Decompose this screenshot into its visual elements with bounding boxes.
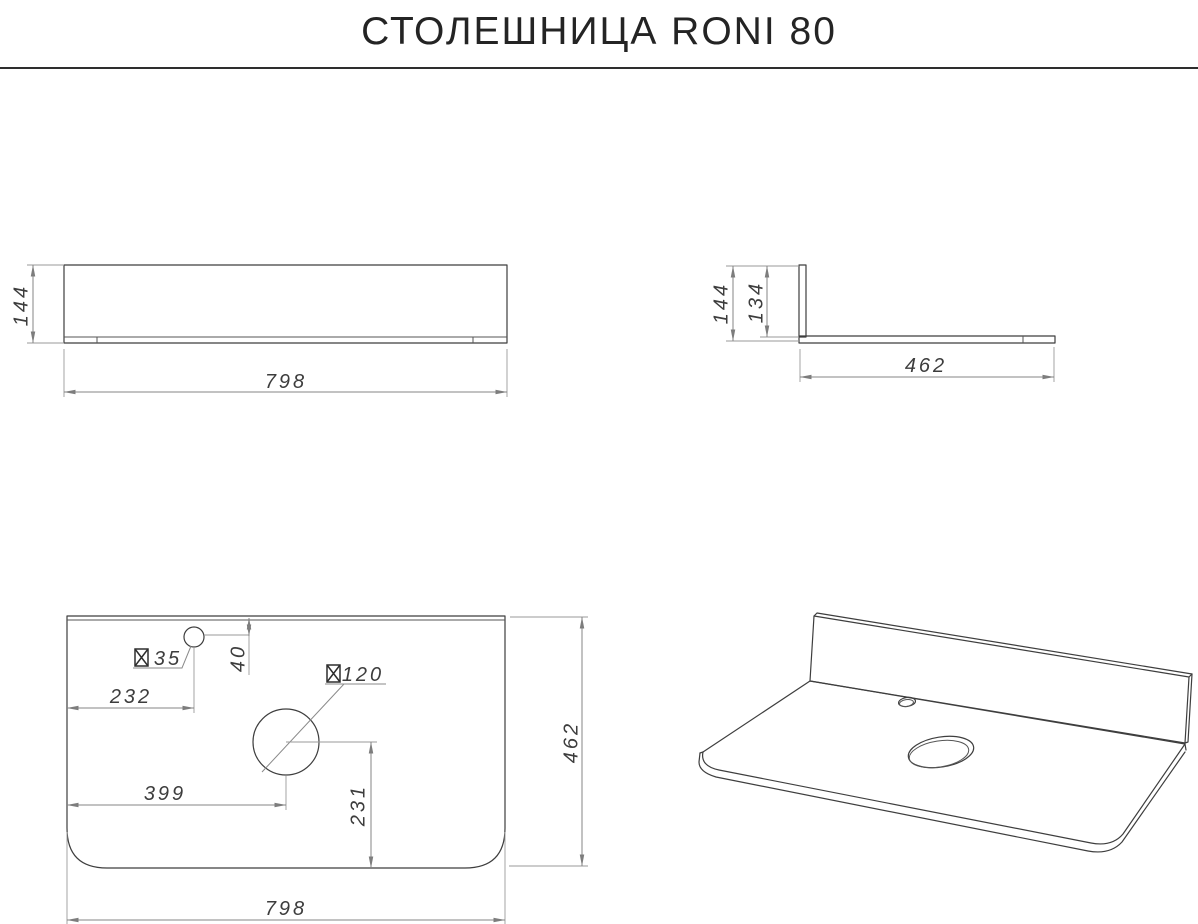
iso-sink-hole xyxy=(906,732,976,772)
faucet-hole xyxy=(184,627,204,647)
sink-diameter-callout: 120 xyxy=(262,664,386,772)
side-countertop xyxy=(799,336,1055,343)
iso-countertop-face xyxy=(703,681,1185,844)
sink-offset-x-dimension: 399 xyxy=(67,776,286,810)
drawing-canvas: 144 798 144 134 xyxy=(0,0,1198,924)
iso-view xyxy=(699,613,1192,852)
technical-drawing-page: СТОЛЕШНИЦА RONI 80 144 xyxy=(0,0,1198,924)
faucet-offset-y-dimension: 40 xyxy=(204,618,249,675)
front-view: 144 798 xyxy=(10,265,507,397)
plan-depth-dimension: 462 xyxy=(509,617,588,866)
side-backsplash-height-dimension: 134 xyxy=(745,266,799,337)
side-depth-label: 462 xyxy=(905,355,947,377)
faucet-diameter-callout: 35 xyxy=(133,646,191,670)
sink-offset-y-dimension: 231 xyxy=(286,742,377,868)
front-outline xyxy=(64,265,507,343)
plan-view: 35 120 40 232 xyxy=(67,616,588,924)
front-height-label: 144 xyxy=(10,284,32,326)
side-backsplash-height-label: 134 xyxy=(745,281,767,323)
side-total-height-label: 144 xyxy=(710,282,732,324)
front-bottom-strip xyxy=(64,337,507,343)
sink-offset-y-label: 231 xyxy=(347,784,369,827)
sink-offset-x-label: 399 xyxy=(144,783,186,805)
iso-corner-connectors xyxy=(700,744,1186,753)
side-backsplash xyxy=(799,265,806,337)
faucet-diameter-label: 35 xyxy=(154,648,182,670)
front-height-dimension: 144 xyxy=(10,265,64,343)
plan-width-dimension: 798 xyxy=(67,832,505,924)
faucet-offset-y-label: 40 xyxy=(227,644,249,672)
front-width-dimension: 798 xyxy=(64,349,507,397)
iso-backsplash-face xyxy=(810,616,1189,743)
iso-backsplash-top-edge xyxy=(814,613,1192,677)
side-depth-dimension: 462 xyxy=(800,347,1054,382)
sink-diameter-label: 120 xyxy=(342,664,384,686)
front-width-label: 798 xyxy=(265,371,307,393)
iso-faucet-hole xyxy=(898,696,916,707)
side-view: 144 134 462 xyxy=(710,265,1055,382)
plan-width-label: 798 xyxy=(265,898,307,920)
faucet-offset-x-label: 232 xyxy=(109,686,152,708)
plan-depth-label: 462 xyxy=(560,721,582,763)
